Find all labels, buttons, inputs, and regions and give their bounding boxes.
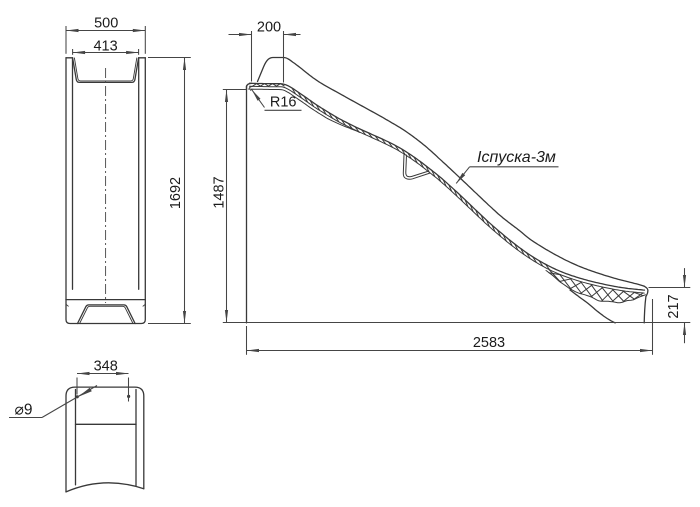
svg-text:2583: 2583 [473, 335, 505, 351]
svg-text:1692: 1692 [168, 177, 184, 209]
svg-text:⌀9: ⌀9 [15, 402, 33, 419]
svg-text:348: 348 [94, 359, 118, 375]
svg-text:500: 500 [94, 15, 118, 31]
svg-text:217: 217 [666, 294, 682, 318]
svg-text:413: 413 [93, 38, 117, 54]
svg-text:R16: R16 [270, 94, 297, 110]
svg-text:1487: 1487 [212, 176, 228, 208]
svg-text:200: 200 [257, 19, 281, 35]
svg-text:Іспуска-3м: Іспуска-3м [477, 149, 556, 166]
